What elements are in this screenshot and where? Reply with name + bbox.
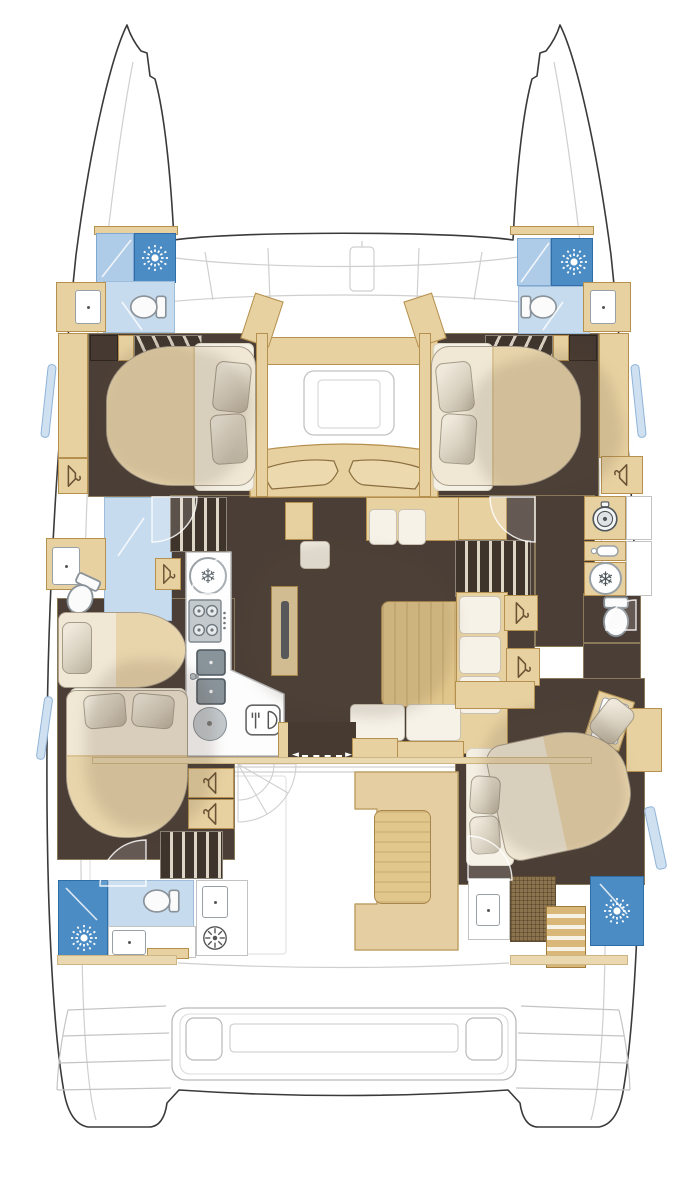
- shower-glass: [66, 888, 97, 920]
- door-swing: [192, 558, 228, 594]
- catamaran-floor-plan: ❄ ❄ ◄ ►: [0, 0, 687, 1200]
- head-door: [543, 302, 563, 330]
- door-swing: [152, 497, 197, 542]
- door-swing: [100, 840, 146, 886]
- head-door: [122, 302, 142, 330]
- shower-glass: [521, 243, 549, 282]
- shower-glass: [102, 240, 131, 277]
- shower-glass: [118, 518, 144, 556]
- shower-glass: [600, 884, 627, 914]
- door-swing: [468, 836, 512, 880]
- door-swings-and-glass: [0, 0, 687, 1200]
- door-swing: [490, 497, 535, 542]
- door-swing: [606, 600, 636, 630]
